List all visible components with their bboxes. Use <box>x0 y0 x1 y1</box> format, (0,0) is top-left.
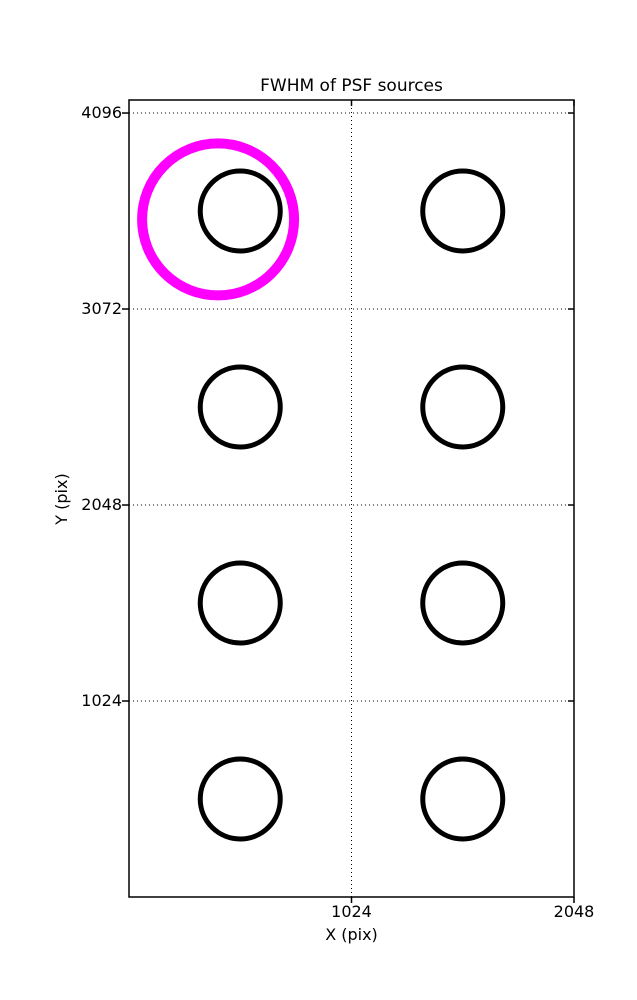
x-tick-label: 2048 <box>554 904 595 920</box>
x-tick-label: 1024 <box>331 904 372 920</box>
plot-canvas <box>129 100 574 897</box>
chart-title: FWHM of PSF sources <box>129 78 574 95</box>
psf-source-marker <box>200 367 280 447</box>
psf-source-marker <box>200 759 280 839</box>
plot-area <box>129 100 574 897</box>
highlighted-source-ring <box>142 143 294 295</box>
psf-source-marker <box>200 171 280 251</box>
psf-source-marker <box>423 563 503 643</box>
y-tick-label: 1024 <box>81 693 122 709</box>
y-tick-label: 3072 <box>81 301 122 317</box>
psf-source-marker <box>423 759 503 839</box>
y-tick-label: 2048 <box>81 497 122 513</box>
psf-source-marker <box>423 171 503 251</box>
figure: FWHM of PSF sources Y (pix) X (pix) 1024… <box>0 0 637 1000</box>
psf-source-marker <box>200 563 280 643</box>
y-tick-label: 4096 <box>81 105 122 121</box>
axes-frame <box>129 100 574 897</box>
psf-source-marker <box>423 367 503 447</box>
x-axis-label: X (pix) <box>129 927 574 943</box>
y-axis-label: Y (pix) <box>54 473 70 524</box>
